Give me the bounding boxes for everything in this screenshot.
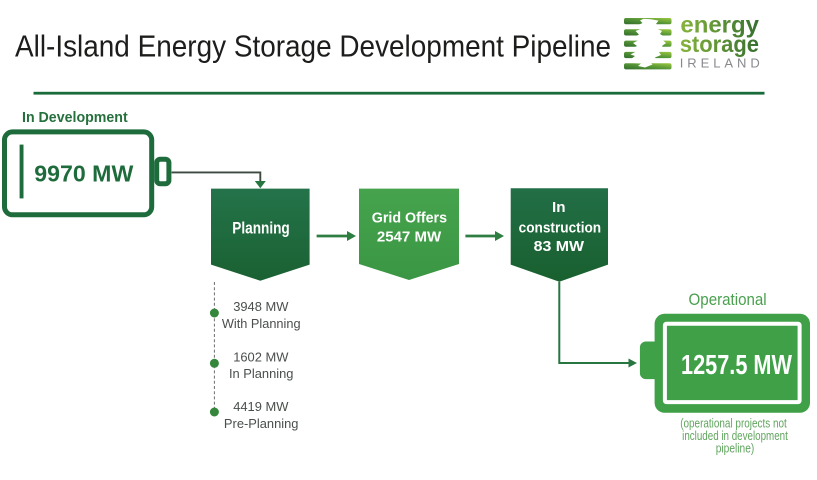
svg-text:Planning: Planning xyxy=(232,219,290,237)
svg-text:1602 MW: 1602 MW xyxy=(233,350,289,365)
svg-text:1257.5 MW: 1257.5 MW xyxy=(681,349,792,380)
svg-text:pipeline): pipeline) xyxy=(716,440,755,455)
svg-text:storage: storage xyxy=(680,31,759,57)
svg-text:Operational: Operational xyxy=(689,291,767,309)
svg-text:construction: construction xyxy=(519,220,602,237)
svg-text:In Planning: In Planning xyxy=(229,366,294,381)
svg-text:All-Island Energy Storage Deve: All-Island Energy Storage Development Pi… xyxy=(15,30,611,63)
svg-text:IRELAND: IRELAND xyxy=(680,56,764,71)
svg-text:2547 MW: 2547 MW xyxy=(377,228,442,245)
svg-text:Grid Offers: Grid Offers xyxy=(372,210,447,227)
svg-text:3948 MW: 3948 MW xyxy=(233,299,289,314)
svg-text:In Development: In Development xyxy=(22,109,128,126)
svg-text:Pre-Planning: Pre-Planning xyxy=(224,416,299,431)
svg-text:83 MW: 83 MW xyxy=(534,238,585,255)
svg-text:In: In xyxy=(552,199,566,216)
svg-text:9970 MW: 9970 MW xyxy=(34,160,133,186)
svg-text:4419 MW: 4419 MW xyxy=(233,399,289,414)
svg-text:With Planning: With Planning xyxy=(222,316,301,331)
